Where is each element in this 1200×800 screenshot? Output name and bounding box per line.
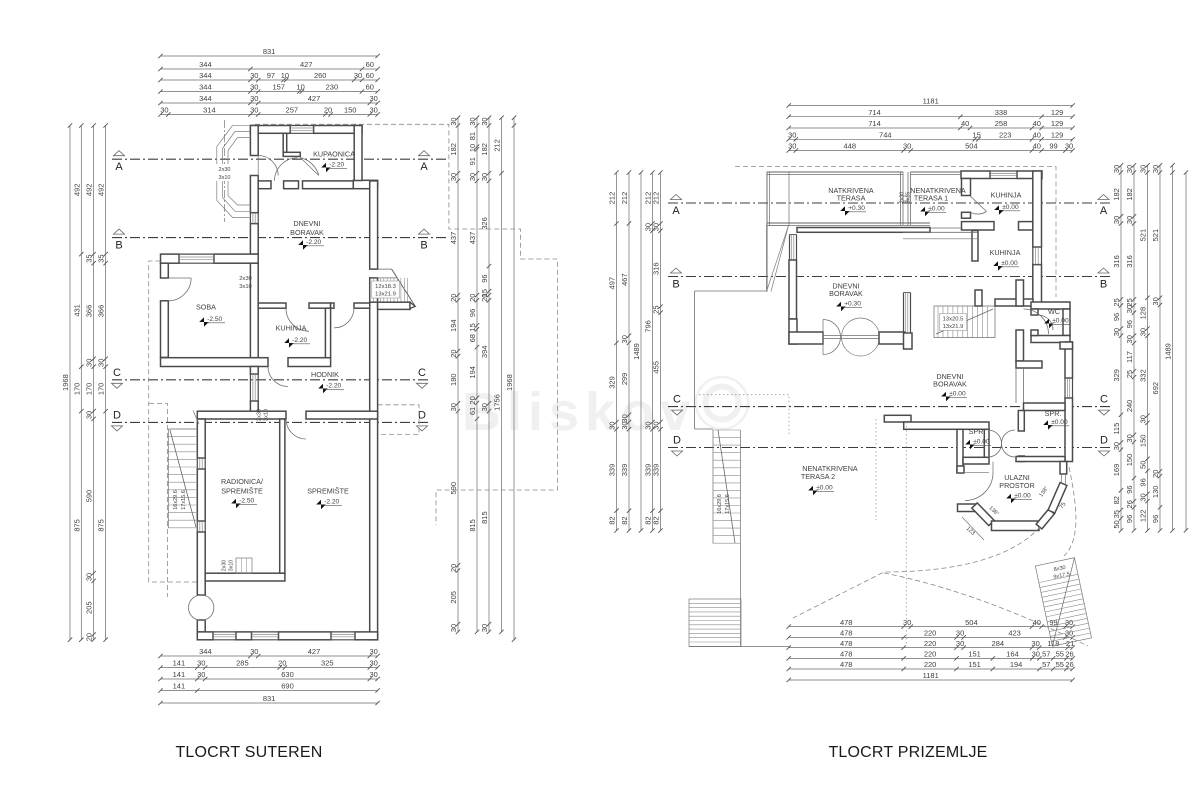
svg-text:212: 212 [493, 139, 502, 152]
svg-text:KUPAONICA: KUPAONICA [313, 150, 355, 159]
svg-text:427: 427 [308, 94, 321, 103]
svg-text:30: 30 [370, 659, 378, 668]
svg-text:30: 30 [480, 117, 489, 125]
svg-text:714: 714 [868, 119, 881, 128]
svg-text:30: 30 [1139, 493, 1148, 501]
svg-text:366: 366 [85, 305, 94, 318]
svg-text:815: 815 [480, 511, 489, 524]
svg-text:157: 157 [272, 83, 285, 92]
svg-text:30: 30 [1125, 335, 1134, 343]
svg-text:25: 25 [1112, 298, 1121, 306]
svg-text:50: 50 [1139, 461, 1148, 469]
svg-text:3x10: 3x10 [229, 560, 235, 572]
svg-text:±0.00: ±0.00 [1014, 492, 1031, 499]
svg-text:3x10: 3x10 [264, 409, 270, 421]
svg-text:344: 344 [199, 60, 212, 69]
svg-text:TERASA 2: TERASA 2 [801, 472, 835, 481]
svg-text:30: 30 [449, 173, 458, 181]
svg-text:437: 437 [449, 232, 458, 245]
svg-text:427: 427 [308, 647, 321, 656]
svg-text:220: 220 [924, 639, 937, 648]
svg-text:TLOCRT PRIZEMLJE: TLOCRT PRIZEMLJE [828, 744, 987, 761]
svg-text:455: 455 [652, 361, 661, 374]
svg-text:40: 40 [1033, 142, 1041, 151]
svg-text:-2.20: -2.20 [329, 161, 344, 168]
svg-text:30: 30 [480, 173, 489, 181]
svg-text:82: 82 [620, 516, 629, 524]
svg-text:240: 240 [1125, 400, 1134, 413]
svg-text:SPREMIŠTE: SPREMIŠTE [307, 487, 349, 496]
svg-text:30: 30 [468, 117, 477, 125]
svg-text:1756: 1756 [493, 394, 502, 411]
svg-text:30: 30 [160, 106, 168, 115]
svg-text:A: A [115, 161, 123, 173]
svg-text:30: 30 [608, 421, 617, 429]
svg-text:590: 590 [85, 490, 94, 503]
svg-text:284: 284 [992, 639, 1005, 648]
svg-text:C: C [673, 394, 681, 406]
svg-text:129: 129 [1051, 119, 1064, 128]
svg-text:30: 30 [1139, 415, 1148, 423]
svg-text:35: 35 [97, 254, 106, 262]
svg-text:150: 150 [1139, 435, 1148, 448]
svg-text:339: 339 [620, 464, 629, 477]
svg-text:30: 30 [620, 421, 629, 429]
svg-text:492: 492 [85, 184, 94, 197]
svg-text:30: 30 [250, 647, 258, 656]
svg-text:329: 329 [1112, 369, 1121, 382]
svg-text:129: 129 [1051, 131, 1064, 140]
svg-text:831: 831 [263, 47, 276, 56]
svg-text:-2.20: -2.20 [324, 498, 339, 505]
svg-text:20: 20 [85, 633, 94, 641]
svg-text:55: 55 [1056, 650, 1064, 659]
svg-text:182: 182 [480, 143, 489, 156]
svg-text:±0.00: ±0.00 [928, 205, 945, 212]
svg-text:141: 141 [173, 682, 186, 691]
svg-text:35: 35 [85, 254, 94, 262]
svg-text:25: 25 [1125, 370, 1134, 378]
svg-text:130: 130 [1151, 486, 1160, 499]
svg-text:30: 30 [1151, 165, 1160, 173]
svg-text:30: 30 [449, 403, 458, 411]
svg-text:Bliskov: Bliskov [462, 382, 696, 442]
svg-text:169: 169 [1112, 464, 1121, 477]
svg-text:30: 30 [480, 403, 489, 411]
svg-text:TERASA 1: TERASA 1 [914, 194, 948, 203]
svg-text:815: 815 [468, 519, 477, 532]
svg-text:332: 332 [1139, 369, 1148, 382]
svg-text:128: 128 [1139, 307, 1148, 320]
svg-text:151: 151 [968, 660, 981, 669]
svg-text:220: 220 [924, 650, 937, 659]
svg-text:30: 30 [85, 359, 94, 367]
svg-text:20: 20 [278, 659, 286, 668]
svg-text:316: 316 [1112, 255, 1121, 268]
svg-text:30: 30 [370, 670, 378, 679]
svg-text:182: 182 [449, 143, 458, 156]
svg-text:3x10: 3x10 [219, 175, 231, 181]
svg-text:26: 26 [1065, 660, 1073, 669]
svg-text:20: 20 [324, 106, 332, 115]
svg-text:12x18.3: 12x18.3 [375, 284, 396, 290]
svg-text:1968: 1968 [61, 374, 70, 391]
svg-text:427: 427 [300, 60, 313, 69]
svg-text:C: C [418, 367, 426, 379]
svg-text:692: 692 [1151, 382, 1160, 395]
svg-text:30: 30 [250, 94, 258, 103]
svg-text:1489: 1489 [1164, 343, 1173, 360]
svg-text:30: 30 [370, 106, 378, 115]
svg-text:344: 344 [199, 647, 212, 656]
svg-text:521: 521 [1139, 229, 1148, 242]
svg-text:KUHINJA: KUHINJA [276, 324, 307, 333]
svg-text:170: 170 [85, 383, 94, 396]
svg-text:212: 212 [620, 192, 629, 205]
svg-text:194: 194 [449, 319, 458, 332]
svg-text:258: 258 [995, 119, 1008, 128]
svg-text:875: 875 [72, 519, 81, 532]
svg-text:26: 26 [1065, 650, 1073, 659]
svg-text:A: A [420, 161, 428, 173]
svg-text:285: 285 [236, 659, 249, 668]
svg-text:338: 338 [995, 108, 1008, 117]
svg-text:30: 30 [97, 359, 106, 367]
svg-text:497: 497 [608, 277, 617, 290]
svg-text:30: 30 [449, 117, 458, 125]
svg-text:BORAVAK: BORAVAK [290, 228, 324, 237]
svg-text:96: 96 [1125, 485, 1134, 493]
svg-text:1489: 1489 [632, 343, 641, 360]
svg-text:-2.50: -2.50 [239, 497, 254, 504]
svg-text:82: 82 [1112, 496, 1121, 504]
svg-text:17x15.6: 17x15.6 [181, 490, 187, 510]
svg-text:714: 714 [868, 108, 881, 117]
svg-text:30: 30 [1032, 650, 1040, 659]
svg-text:30: 30 [1112, 216, 1121, 224]
svg-text:875: 875 [97, 519, 106, 532]
svg-text:B: B [420, 240, 427, 252]
svg-text:BORAVAK: BORAVAK [829, 289, 863, 298]
svg-text:40: 40 [961, 119, 969, 128]
svg-text:212: 212 [608, 192, 617, 205]
svg-text:20: 20 [449, 564, 458, 572]
svg-text:223: 223 [999, 131, 1012, 140]
svg-text:366: 366 [97, 305, 106, 318]
svg-text:A: A [1100, 205, 1108, 217]
svg-text:30: 30 [1112, 328, 1121, 336]
svg-text:478: 478 [840, 629, 853, 638]
svg-text:314: 314 [203, 106, 216, 115]
svg-text:KUHINJA: KUHINJA [990, 248, 1021, 257]
svg-text:467: 467 [620, 273, 629, 286]
svg-text:97: 97 [267, 71, 275, 80]
svg-text:20: 20 [449, 294, 458, 302]
svg-text:±0.00: ±0.00 [949, 390, 966, 397]
svg-text:122: 122 [1139, 510, 1148, 523]
svg-text:DNEVNI: DNEVNI [293, 219, 320, 228]
svg-text:60: 60 [366, 83, 374, 92]
svg-text:115: 115 [1112, 423, 1121, 435]
svg-text:326: 326 [480, 217, 489, 230]
svg-text:30: 30 [250, 71, 258, 80]
svg-text:SOBA: SOBA [196, 303, 216, 312]
svg-text:30: 30 [449, 624, 458, 632]
svg-text:82: 82 [652, 516, 661, 524]
svg-text:HODNIK: HODNIK [311, 370, 339, 379]
svg-text:96: 96 [1125, 320, 1134, 328]
svg-text:1181: 1181 [923, 671, 939, 680]
svg-text:±0.00: ±0.00 [816, 484, 833, 491]
svg-text:20: 20 [449, 349, 458, 357]
svg-text:423: 423 [1008, 629, 1021, 638]
svg-text:344: 344 [199, 71, 212, 80]
svg-text:151: 151 [968, 650, 981, 659]
svg-text:339: 339 [608, 464, 617, 477]
svg-text:30: 30 [956, 629, 964, 638]
svg-text:BORAVAK: BORAVAK [933, 380, 967, 389]
svg-text:C: C [113, 367, 121, 379]
svg-text:1181: 1181 [923, 97, 939, 106]
svg-text:194: 194 [468, 366, 477, 379]
svg-text:394: 394 [480, 346, 489, 359]
svg-text:60: 60 [366, 60, 374, 69]
svg-text:30: 30 [197, 670, 205, 679]
svg-text:339: 339 [652, 464, 661, 477]
svg-text:325: 325 [321, 659, 334, 668]
svg-text:30: 30 [903, 142, 911, 151]
svg-text:141: 141 [173, 659, 186, 668]
svg-text:492: 492 [97, 184, 106, 197]
svg-text:16x29.6: 16x29.6 [717, 494, 723, 514]
svg-text:96: 96 [1151, 515, 1160, 523]
svg-text:30: 30 [1112, 442, 1121, 450]
svg-text:30: 30 [250, 106, 258, 115]
svg-text:205: 205 [449, 591, 458, 604]
svg-text:260: 260 [314, 71, 327, 80]
svg-text:521: 521 [1151, 229, 1160, 242]
svg-text:17x15.6: 17x15.6 [725, 494, 731, 514]
svg-text:±0.00: ±0.00 [1052, 317, 1069, 324]
svg-text:20: 20 [1151, 470, 1160, 478]
svg-text:13x21.9: 13x21.9 [375, 292, 396, 298]
svg-text:504: 504 [965, 618, 978, 627]
svg-text:25: 25 [652, 305, 661, 313]
svg-text:150: 150 [344, 106, 357, 115]
svg-text:504: 504 [965, 142, 978, 151]
svg-text:91: 91 [468, 157, 477, 165]
svg-text:55: 55 [1056, 660, 1064, 669]
svg-text:230: 230 [326, 83, 339, 92]
svg-text:B: B [672, 279, 679, 291]
svg-text:831: 831 [263, 694, 276, 703]
svg-text:437: 437 [468, 232, 477, 245]
svg-text:WC: WC [1048, 307, 1060, 316]
svg-text:C: C [1100, 394, 1108, 406]
svg-text:20: 20 [480, 294, 489, 302]
svg-text:30: 30 [1125, 216, 1134, 224]
svg-text:A: A [672, 205, 680, 217]
svg-text:30: 30 [652, 421, 661, 429]
svg-text:SPREMIŠTE: SPREMIŠTE [221, 487, 263, 496]
svg-text:-2.20: -2.20 [292, 337, 307, 344]
svg-text:344: 344 [199, 94, 212, 103]
svg-text:20: 20 [468, 294, 477, 302]
svg-text:30: 30 [652, 223, 661, 231]
svg-text:-2.50: -2.50 [207, 316, 222, 323]
svg-text:±0.00: ±0.00 [1002, 204, 1019, 211]
svg-text:96: 96 [1112, 313, 1121, 321]
svg-text:2x30: 2x30 [257, 409, 263, 421]
svg-text:60: 60 [366, 71, 374, 80]
svg-text:141: 141 [173, 670, 186, 679]
svg-text:RADIONICA/: RADIONICA/ [221, 477, 263, 486]
svg-text:164: 164 [1006, 650, 1019, 659]
svg-text:796: 796 [644, 320, 653, 333]
svg-text:D: D [1100, 435, 1108, 447]
svg-text:40: 40 [1033, 131, 1041, 140]
svg-text:57: 57 [1042, 650, 1050, 659]
svg-text:57: 57 [1042, 660, 1050, 669]
svg-text:+0.30: +0.30 [848, 205, 865, 212]
svg-text:220: 220 [924, 629, 937, 638]
svg-text:KUHINJA: KUHINJA [991, 191, 1022, 200]
svg-text:30: 30 [1151, 297, 1160, 305]
svg-text:30: 30 [1125, 165, 1134, 173]
svg-text:-2.20: -2.20 [306, 239, 321, 246]
svg-text:TERASA: TERASA [837, 194, 866, 203]
svg-text:478: 478 [840, 618, 853, 627]
svg-text:±0.00: ±0.00 [1051, 419, 1068, 426]
svg-text:+0.30: +0.30 [844, 300, 861, 307]
svg-text:20: 20 [468, 396, 477, 404]
svg-text:3x10: 3x10 [239, 284, 252, 290]
svg-text:-2.20: -2.20 [326, 382, 341, 389]
svg-text:182: 182 [1125, 188, 1134, 201]
svg-text:30: 30 [1031, 639, 1039, 648]
svg-text:99: 99 [1049, 142, 1057, 151]
svg-text:2x30: 2x30 [222, 560, 228, 572]
svg-text:590: 590 [449, 482, 458, 495]
svg-text:478: 478 [840, 650, 853, 659]
svg-text:81: 81 [468, 132, 477, 140]
svg-text:257: 257 [286, 106, 299, 115]
svg-text:30: 30 [1125, 434, 1134, 442]
svg-text:180: 180 [449, 373, 458, 386]
svg-text:220: 220 [924, 660, 937, 669]
svg-text:PROSTOR: PROSTOR [999, 481, 1034, 490]
svg-text:30: 30 [370, 94, 378, 103]
svg-text:50: 50 [1112, 520, 1121, 528]
svg-text:16x29.6: 16x29.6 [173, 490, 179, 510]
svg-text:30: 30 [85, 573, 94, 581]
svg-text:316: 316 [652, 262, 661, 275]
svg-text:68: 68 [468, 334, 477, 342]
svg-text:30: 30 [197, 659, 205, 668]
svg-text:96: 96 [1139, 478, 1148, 486]
svg-text:96: 96 [468, 309, 477, 317]
svg-text:30: 30 [620, 335, 629, 343]
svg-text:30: 30 [370, 647, 378, 656]
svg-text:329: 329 [608, 376, 617, 389]
svg-text:1968: 1968 [505, 374, 514, 391]
svg-text:478: 478 [840, 660, 853, 669]
svg-text:316: 316 [1125, 255, 1134, 268]
svg-text:26: 26 [1125, 500, 1134, 508]
svg-text:13x21.9: 13x21.9 [943, 324, 964, 330]
svg-text:D: D [673, 435, 681, 447]
svg-text:SPR.: SPR. [1045, 409, 1062, 418]
svg-text:690: 690 [281, 682, 294, 691]
svg-text:30: 30 [1125, 305, 1134, 313]
svg-text:431: 431 [72, 304, 81, 317]
svg-text:170: 170 [97, 383, 106, 396]
svg-text:212: 212 [652, 192, 661, 205]
svg-text:630: 630 [281, 670, 294, 679]
svg-text:182: 182 [1112, 188, 1121, 201]
svg-text:30: 30 [1139, 165, 1148, 173]
svg-text:30: 30 [250, 83, 258, 92]
svg-text:170: 170 [72, 383, 81, 396]
svg-text:30: 30 [1065, 142, 1073, 151]
svg-text:±0.00: ±0.00 [1001, 260, 1018, 267]
svg-text:30: 30 [480, 624, 489, 632]
svg-text:30: 30 [85, 411, 94, 419]
svg-text:30: 30 [956, 639, 964, 648]
svg-text:150: 150 [1125, 454, 1134, 467]
svg-text:478: 478 [840, 639, 853, 648]
svg-text:30: 30 [788, 131, 796, 140]
svg-text:±0.00: ±0.00 [973, 438, 990, 445]
svg-text:117: 117 [1125, 351, 1134, 363]
svg-text:B: B [115, 240, 122, 252]
svg-text:448: 448 [844, 142, 857, 151]
svg-text:30: 30 [1112, 165, 1121, 173]
svg-text:2x30: 2x30 [219, 167, 231, 173]
svg-text:61: 61 [468, 407, 477, 415]
svg-text:B: B [1100, 279, 1107, 291]
svg-text:205: 205 [85, 601, 94, 614]
svg-text:492: 492 [72, 184, 81, 197]
svg-text:744: 744 [879, 131, 892, 140]
svg-text:30: 30 [468, 173, 477, 181]
svg-text:D: D [113, 409, 121, 421]
svg-text:344: 344 [199, 83, 212, 92]
svg-text:96: 96 [480, 274, 489, 282]
svg-text:194: 194 [1010, 660, 1023, 669]
svg-text:82: 82 [608, 516, 617, 524]
svg-text:129: 129 [1051, 108, 1064, 117]
svg-text:30: 30 [1139, 328, 1148, 336]
svg-text:30: 30 [354, 71, 362, 80]
svg-text:30: 30 [620, 414, 629, 422]
svg-text:30: 30 [903, 618, 911, 627]
svg-text:40: 40 [1033, 119, 1041, 128]
svg-text:2x30: 2x30 [239, 276, 252, 282]
svg-text:96: 96 [1125, 515, 1134, 523]
svg-text:299: 299 [620, 373, 629, 386]
svg-text:SPR.: SPR. [969, 427, 986, 436]
svg-text:13x20.5: 13x20.5 [943, 317, 964, 323]
svg-text:TLOCRT SUTEREN: TLOCRT SUTEREN [175, 744, 322, 761]
svg-text:30: 30 [788, 142, 796, 151]
svg-text:35: 35 [1112, 510, 1121, 518]
